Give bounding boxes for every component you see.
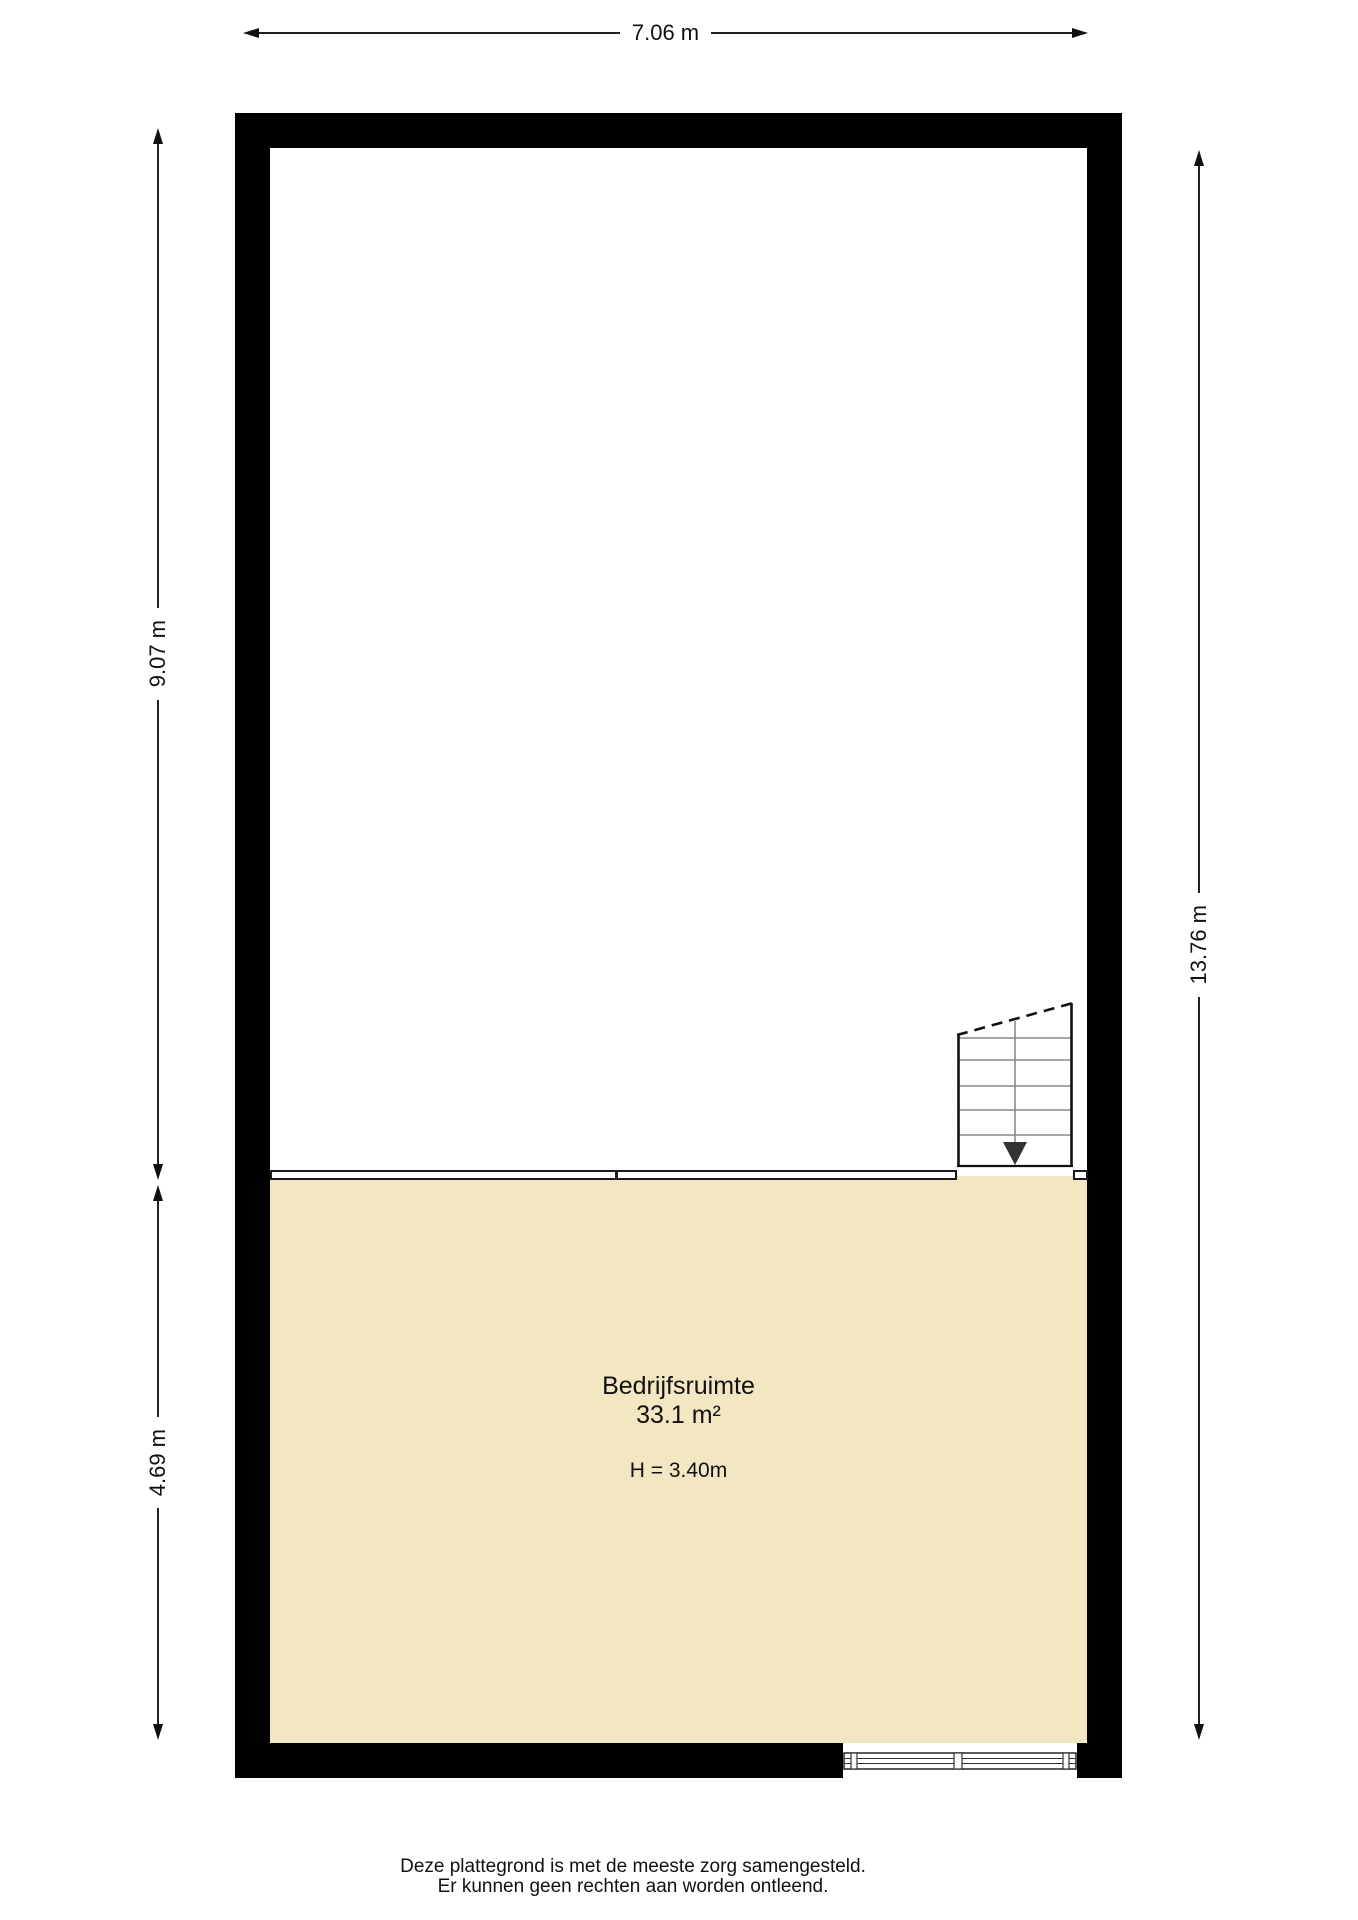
room-name: Bedrijfsruimte — [270, 1372, 1087, 1401]
dimension-line — [1198, 997, 1200, 1724]
stair-direction-arrow-icon — [1003, 1142, 1027, 1165]
dimension-top-label: 7.06 m — [620, 20, 711, 46]
footer-line-2: Er kunnen geen rechten aan worden ontlee… — [0, 1877, 1266, 1897]
dimension-right-label: 13.76 m — [1186, 893, 1212, 997]
footer-line-1: Deze plattegrond is met de meeste zorg s… — [0, 1857, 1266, 1877]
partition-wall-right — [1073, 1170, 1088, 1180]
window-mullion — [1063, 1753, 1069, 1769]
dimension-line — [259, 32, 620, 34]
dimension-left-upper: 9.07 m — [144, 128, 172, 1180]
partition-wall-left — [270, 1170, 957, 1180]
arrow-up-icon — [1194, 150, 1204, 166]
dimension-line — [711, 32, 1072, 34]
arrow-up-icon — [153, 1185, 163, 1201]
footer-disclaimer: Deze plattegrond is met de meeste zorg s… — [0, 1857, 1266, 1897]
window — [843, 1743, 1077, 1778]
dimension-right: 13.76 m — [1185, 150, 1213, 1740]
window-mullion — [954, 1753, 962, 1769]
dimension-line — [157, 1201, 159, 1417]
arrow-down-icon — [1194, 1724, 1204, 1740]
room-ceiling-height: H = 3.40m — [270, 1459, 1087, 1483]
dimension-line — [157, 700, 159, 1164]
floor-plan-page: 7.06 m 9.07 m 4.69 m 13.76 m — [0, 0, 1358, 1920]
room-label: Bedrijfsruimte 33.1 m² H = 3.40m — [270, 1372, 1087, 1483]
dimension-left-lower: 4.69 m — [144, 1185, 172, 1740]
dimension-line — [157, 144, 159, 608]
staircase — [957, 1001, 1073, 1168]
arrow-left-icon — [243, 28, 259, 38]
window-opening — [843, 1743, 1077, 1778]
dimension-top: 7.06 m — [243, 20, 1088, 46]
room-area: 33.1 m² — [270, 1401, 1087, 1430]
dimension-line — [1198, 166, 1200, 893]
partition-joint — [615, 1170, 618, 1180]
dimension-left-upper-label: 9.07 m — [145, 608, 171, 699]
arrow-up-icon — [153, 128, 163, 144]
arrow-down-icon — [153, 1724, 163, 1740]
dimension-left-lower-label: 4.69 m — [145, 1417, 171, 1508]
dimension-line — [157, 1508, 159, 1724]
window-mullion — [851, 1753, 857, 1769]
arrow-right-icon — [1072, 28, 1088, 38]
arrow-down-icon — [153, 1164, 163, 1180]
